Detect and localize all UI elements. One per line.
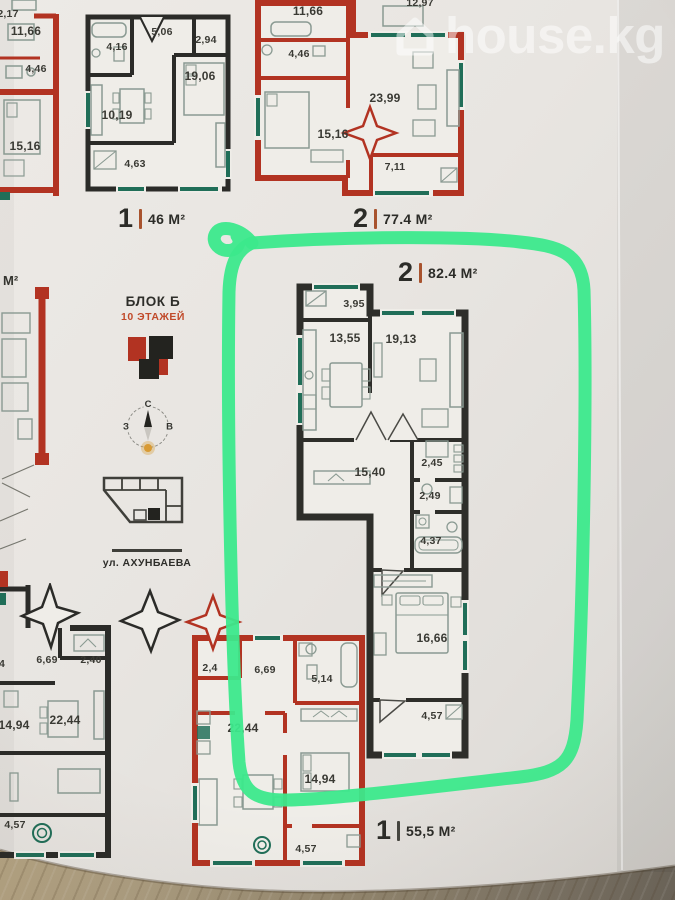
room-area-label: 16,66 — [416, 631, 447, 645]
logo-block-dark-bm — [139, 359, 159, 379]
plan-caption-77: 2 77.4 М² — [353, 205, 433, 232]
caption-divider — [374, 209, 377, 229]
compass-rose: С З В — [124, 403, 172, 451]
plan-total-area: 46 М² — [148, 211, 185, 227]
room-area-label: 14,94 — [304, 772, 335, 786]
room-area-label: 19,06 — [184, 69, 215, 83]
floors-count: 10 ЭТАЖЕЙ — [103, 311, 203, 323]
plan-rooms-count: 2 — [398, 259, 413, 286]
room-area-label: 22,44 — [227, 721, 258, 735]
logo-block-red-br — [159, 359, 168, 375]
compass-needle-south — [144, 427, 152, 441]
room-area-label: 19,13 — [385, 332, 416, 346]
room-area-label: 2,94 — [195, 34, 216, 46]
room-area-label: 10,19 — [101, 108, 132, 122]
room-area-label: 2,49 — [419, 490, 440, 502]
room-area-label: 4,57 — [295, 843, 316, 855]
block-title: БЛОК Б — [103, 294, 203, 309]
watermark: house.kg — [393, 10, 665, 61]
room-area-label: 5,06 — [151, 26, 172, 38]
room-area-label: 11,66 — [11, 24, 41, 38]
room-area-label: 5,14 — [311, 673, 332, 685]
room-area-label: 3,95 — [343, 298, 364, 310]
plan-rooms-count: 1 — [376, 817, 391, 844]
room-area-label: 13,55 — [329, 331, 360, 345]
plan-rooms-count: 2 — [353, 205, 368, 232]
room-area-label: 23,99 — [369, 91, 400, 105]
room-area-label: 22,44 — [49, 713, 80, 727]
room-area-label: 2,40 — [80, 654, 101, 666]
room-area-label: 4,57 — [4, 819, 25, 831]
room-area-label: 2,45 — [421, 457, 442, 469]
compass-north: С — [144, 400, 153, 410]
brochure-photo: 2,17 11,66 4,46 15,16 4,16 5,06 2,94 19,… — [0, 0, 675, 900]
room-area-label: 15,16 — [9, 139, 40, 153]
room-area-label: 4,16 — [106, 41, 127, 53]
room-area-label: 4,46 — [288, 48, 309, 60]
plan-caption-55: 1 55,5 М² — [376, 817, 456, 844]
cut-area-label-fragment: М² — [3, 273, 18, 288]
plan-total-area: 82.4 М² — [428, 265, 478, 281]
room-area-label: 11,66 — [293, 4, 323, 18]
caption-divider — [139, 209, 142, 229]
logo-block-red-tl — [128, 337, 146, 361]
logo-block-dark-tr — [149, 336, 173, 359]
room-area-label: 6,69 — [36, 654, 57, 666]
room-area-label: 4,46 — [25, 63, 46, 75]
compass-needle-north — [144, 410, 152, 427]
plan-caption-46: 1 46 М² — [118, 205, 185, 232]
room-area-label: 15,16 — [317, 127, 348, 141]
caption-divider — [419, 263, 422, 283]
house-icon — [393, 15, 437, 57]
street-divider-line — [112, 549, 182, 552]
room-area-label: 4,57 — [421, 710, 442, 722]
watermark-text: house.kg — [445, 10, 665, 61]
room-area-label: 4,63 — [124, 158, 145, 170]
plan-caption-82: 2 82.4 М² — [398, 259, 478, 286]
compass-east: В — [165, 422, 174, 432]
caption-divider — [397, 821, 400, 841]
room-area-label: 4 — [0, 658, 5, 670]
compass-dot — [144, 444, 152, 452]
plan-total-area: 55,5 М² — [406, 823, 456, 839]
compass-west: З — [122, 422, 130, 432]
room-area-label: 4,37 — [420, 535, 441, 547]
plan-rooms-count: 1 — [118, 205, 133, 232]
plan-total-area: 77.4 М² — [383, 211, 433, 227]
room-area-label: 15,40 — [354, 465, 385, 479]
room-area-label: 2,4 — [202, 662, 217, 674]
site-plan-icon — [100, 468, 188, 530]
room-area-label: 12,97 — [406, 0, 433, 9]
room-area-label: 2,17 — [0, 8, 19, 20]
room-area-label: 7,11 — [385, 161, 406, 173]
room-area-label: 14,94 — [0, 718, 30, 732]
floor-plan-left-edge-fragment — [0, 283, 50, 628]
developer-logo — [128, 336, 174, 380]
room-area-label: 6,69 — [254, 664, 275, 676]
street-name: ул. АХУНБАЕВА — [96, 557, 198, 569]
